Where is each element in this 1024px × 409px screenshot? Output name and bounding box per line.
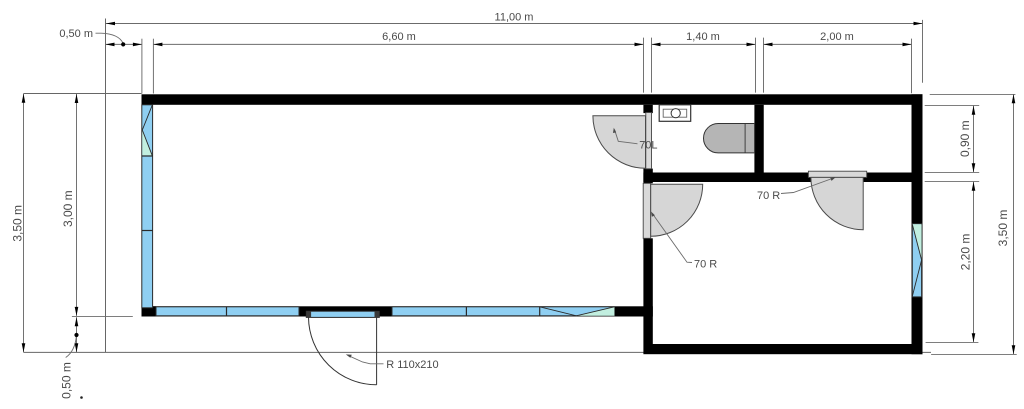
svg-text:0,50 m: 0,50 m (59, 28, 93, 40)
svg-text:2,00 m: 2,00 m (820, 31, 854, 43)
svg-text:0,90 m: 0,90 m (958, 120, 972, 157)
svg-text:70 R: 70 R (694, 259, 717, 271)
svg-text:3,00 m: 3,00 m (61, 190, 75, 227)
svg-text:3,50 m: 3,50 m (10, 205, 24, 242)
svg-text:3,50 m: 3,50 m (996, 210, 1010, 247)
svg-text:R 110x210: R 110x210 (386, 359, 438, 371)
svg-text:2,20 m: 2,20 m (958, 234, 972, 271)
svg-text:6,60 m: 6,60 m (382, 31, 416, 43)
svg-text:11,00 m: 11,00 m (495, 12, 534, 24)
svg-text:70 R: 70 R (757, 190, 780, 202)
svg-text:1,40 m: 1,40 m (686, 31, 720, 43)
svg-text:70L: 70L (639, 140, 657, 152)
svg-text:0,50 m: 0,50 m (60, 362, 74, 399)
